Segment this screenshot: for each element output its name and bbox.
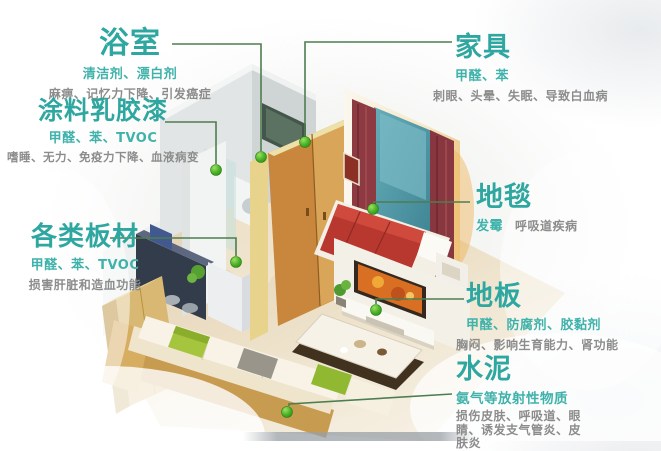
- label-paint: 涂料乳胶漆 甲醛、苯、TVOC 嗜睡、无力、免疫力下降、血液病变: [5, 98, 201, 165]
- label-bathroom-title: 浴室: [30, 28, 230, 60]
- dot-floor: [371, 305, 382, 316]
- label-cement-symptoms: 损伤皮肤、呼吸道、眼睛、诱发支气管炎、皮肤炎: [456, 410, 584, 450]
- dot-paint: [211, 165, 222, 176]
- label-cement-title: 水泥: [456, 356, 656, 384]
- label-furniture: 家具 甲醛、苯 刺眼、头晕、失眠、导致白血病: [455, 34, 661, 104]
- dot-bathroom: [256, 152, 267, 163]
- label-boards-symptoms: 损害肝脏和造血功能: [5, 276, 165, 293]
- dot-furniture: [300, 137, 311, 148]
- label-paint-title: 涂料乳胶漆: [5, 98, 201, 124]
- dot-boards: [231, 257, 242, 268]
- label-paint-symptoms: 嗜睡、无力、免疫力下降、血液病变: [5, 149, 201, 165]
- label-bathroom: 浴室 清洁剂、漂白剂 麻痹、记忆力下降、引发癌症: [30, 28, 230, 102]
- bottom-edge-strip: [243, 432, 475, 441]
- label-boards-pollutants: 甲醛、苯、TVOC: [5, 254, 165, 273]
- infographic-canvas: 浴室 清洁剂、漂白剂 麻痹、记忆力下降、引发癌症 涂料乳胶漆 甲醛、苯、TVOC…: [0, 0, 661, 441]
- label-floor-symptoms: 胸闷、影响生育能力、肾功能: [456, 336, 661, 353]
- label-carpet: 地毯 发霉 呼吸道疾病: [476, 184, 661, 234]
- dot-carpet: [368, 204, 379, 215]
- label-cement-pollutants: 氨气等放射性物质: [456, 387, 656, 407]
- label-carpet-pollutants: 发霉: [476, 215, 503, 234]
- label-boards-title: 各类板材: [5, 224, 165, 251]
- dot-cement: [282, 407, 293, 418]
- label-floor-title: 地板: [466, 283, 661, 311]
- label-bathroom-pollutants: 清洁剂、漂白剂: [30, 63, 230, 82]
- label-boards: 各类板材 甲醛、苯、TVOC 损害肝脏和造血功能: [5, 224, 165, 293]
- label-paint-pollutants: 甲醛、苯、TVOC: [5, 127, 201, 146]
- label-carpet-symptoms: 呼吸道疾病: [515, 217, 578, 234]
- label-furniture-title: 家具: [455, 34, 661, 62]
- label-furniture-symptoms: 刺眼、头晕、失眠、导致白血病: [433, 87, 661, 104]
- label-floor: 地板 甲醛、防腐剂、胶黏剂 胸闷、影响生育能力、肾功能: [466, 283, 661, 353]
- label-carpet-title: 地毯: [476, 184, 661, 212]
- label-cement: 水泥 氨气等放射性物质 损伤皮肤、呼吸道、眼睛、诱发支气管炎、皮肤炎: [456, 356, 656, 451]
- label-floor-pollutants: 甲醛、防腐剂、胶黏剂: [466, 314, 661, 333]
- label-furniture-pollutants: 甲醛、苯: [455, 65, 661, 84]
